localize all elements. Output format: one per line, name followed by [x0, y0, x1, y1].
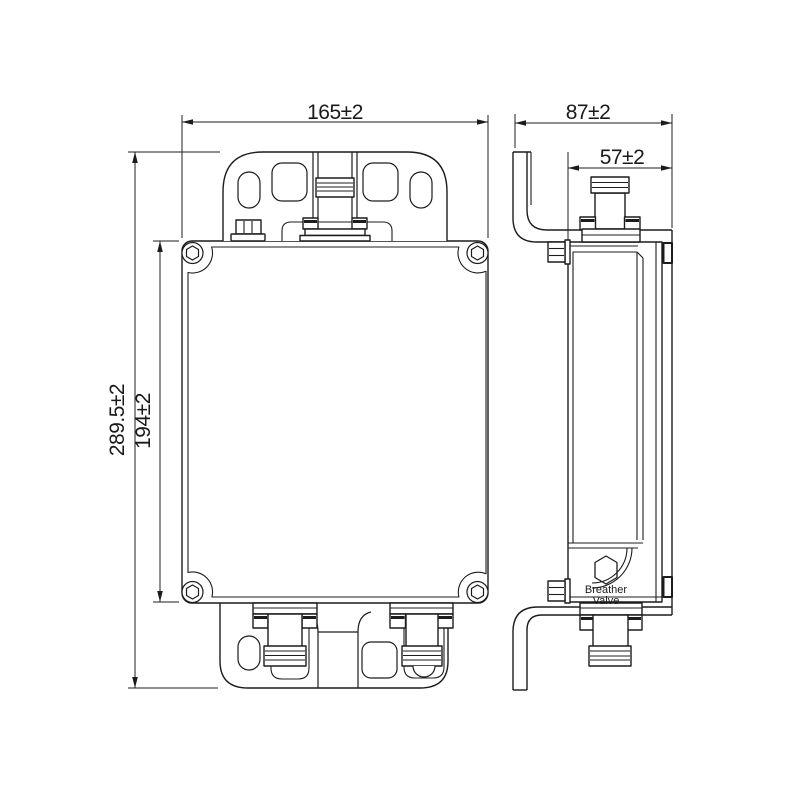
side-overall-depth-dim-label: 87±2 — [566, 101, 611, 124]
corner-screw-icon — [467, 582, 488, 603]
side-top-connector — [580, 177, 640, 242]
front-main-box — [182, 241, 488, 603]
front-body-height-dim-label: 194±2 — [132, 393, 155, 449]
side-clamp-bottom — [664, 577, 673, 597]
technical-drawing: Breather Valve 165±2 289.5±2 — [0, 0, 800, 800]
breather-valve-label-line2: Valve — [593, 595, 620, 607]
side-clamp-top — [664, 243, 673, 263]
dim-front-body-height — [153, 241, 179, 602]
side-body-depth-dim-label: 57±2 — [600, 146, 645, 169]
side-view: Breather Valve — [513, 152, 672, 690]
front-ground-stud — [231, 220, 265, 241]
technical-drawing-page: Breather Valve 165±2 289.5±2 — [0, 0, 800, 800]
corner-screw-icon — [467, 243, 488, 264]
side-pole-plate — [664, 230, 673, 615]
dim-side-overall-depth — [515, 114, 672, 228]
front-width-dim-label: 165±2 — [307, 101, 363, 124]
side-bolt-top — [548, 240, 570, 264]
side-body — [568, 242, 662, 602]
side-bolt-bottom — [548, 579, 570, 603]
front-view — [182, 152, 488, 688]
corner-screw-icon — [182, 582, 203, 603]
side-bottom-connector — [580, 603, 642, 666]
corner-screw-icon — [182, 243, 203, 264]
front-overall-height-dim-label: 289.5±2 — [106, 384, 129, 456]
